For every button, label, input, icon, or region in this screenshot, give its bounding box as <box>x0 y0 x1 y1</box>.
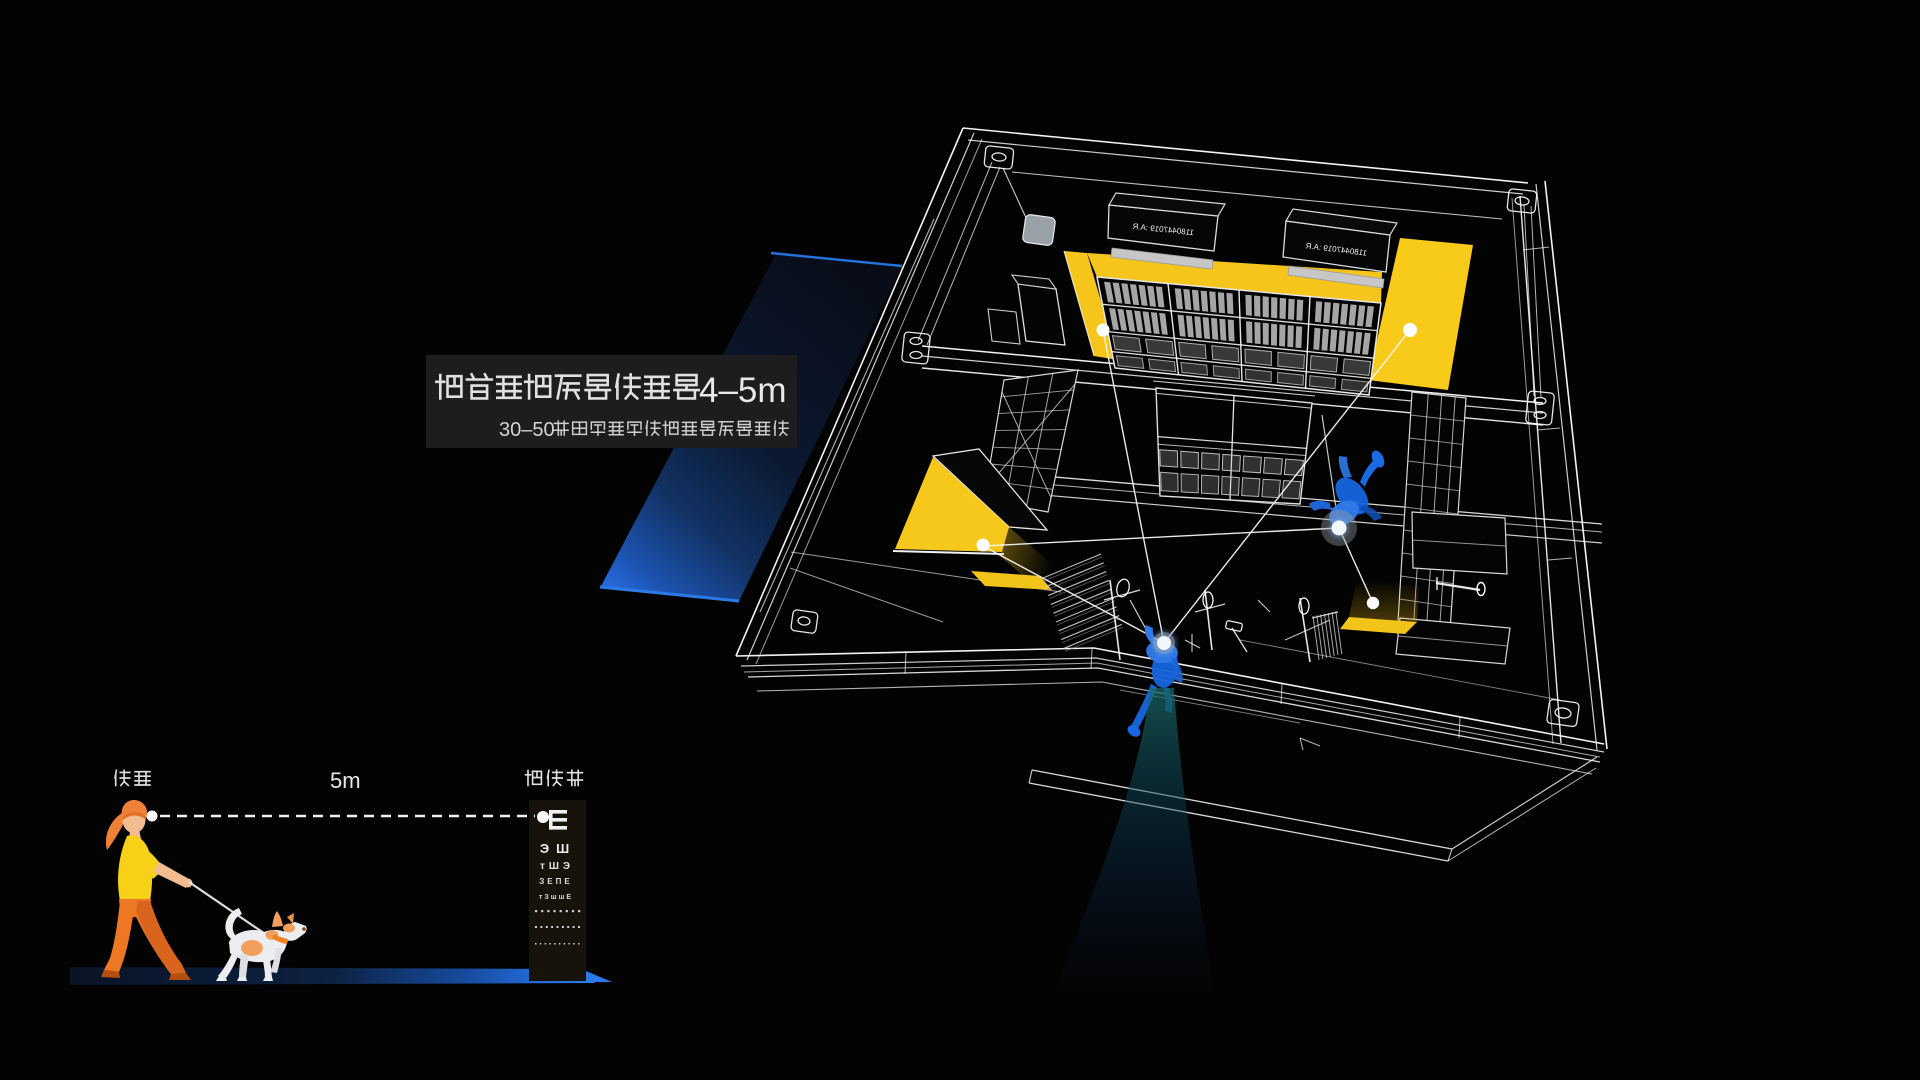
svg-text:тШЭ: тШЭ <box>540 861 574 872</box>
svg-text:ЗЕПЕ: ЗЕПЕ <box>539 877 572 886</box>
svg-text:4–5m: 4–5m <box>699 371 787 410</box>
svg-text:5m: 5m <box>330 768 361 793</box>
svg-text:30–50: 30–50 <box>499 419 555 441</box>
svg-text:ЭШ: ЭШ <box>540 841 576 856</box>
svg-text:тЗшшЕ: тЗшшЕ <box>539 894 573 901</box>
